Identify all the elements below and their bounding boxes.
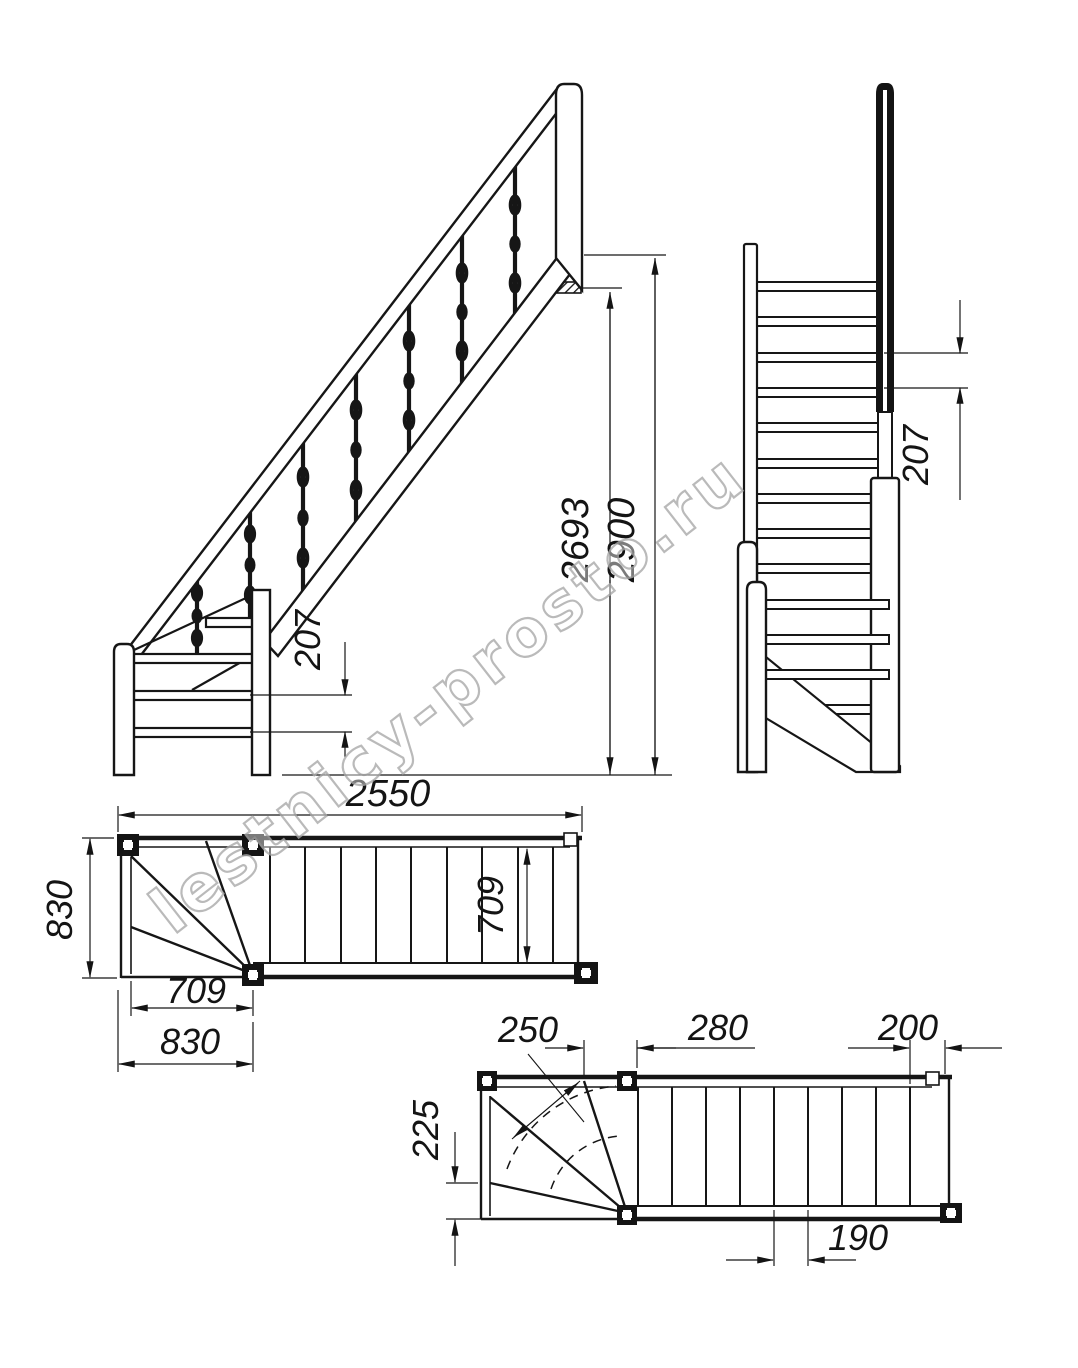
winder-step: [122, 654, 262, 663]
dim-walkline-tread-label: 250: [497, 1009, 558, 1050]
top-newel-post: [556, 84, 582, 290]
corner-post-front: [871, 478, 899, 772]
dim-riser-front-label: 207: [895, 423, 936, 486]
dim-stair-width: [82, 838, 117, 978]
dim-first-tread-label: 280: [687, 1007, 748, 1048]
post-neck: [878, 412, 892, 478]
treads-front: [757, 282, 879, 573]
dim-stair-width-label: 830: [39, 880, 80, 940]
center-post: [252, 590, 270, 775]
newel-front-b: [747, 582, 766, 772]
blueprint-canvas: 207 2693 2900: [0, 0, 1078, 1368]
dim-last-tread-label: 200: [877, 1007, 938, 1048]
dim-riser-side-label: 207: [287, 608, 328, 671]
dim-winder-width-label: 709: [166, 970, 226, 1011]
dim-tread-depth-label: 190: [828, 1217, 888, 1258]
winder-step: [206, 618, 258, 627]
dim-flight-width-label: 709: [470, 876, 511, 936]
bottom-newel-post: [114, 644, 134, 775]
dim-winder-length-label: 830: [160, 1021, 220, 1062]
winder-step: [128, 728, 252, 737]
dim-winder-narrow: [446, 1132, 481, 1266]
side-elevation-view: [114, 84, 672, 775]
lower-plan-view: [446, 1040, 1002, 1266]
dim-winder-narrow-label: 225: [405, 1099, 446, 1161]
winder-step: [128, 691, 252, 700]
balusters: [193, 162, 519, 658]
handrail: [129, 90, 565, 659]
treads-plan-bottom: [638, 1087, 910, 1206]
staircase-drawing: 207 2693 2900: [0, 0, 1078, 1368]
